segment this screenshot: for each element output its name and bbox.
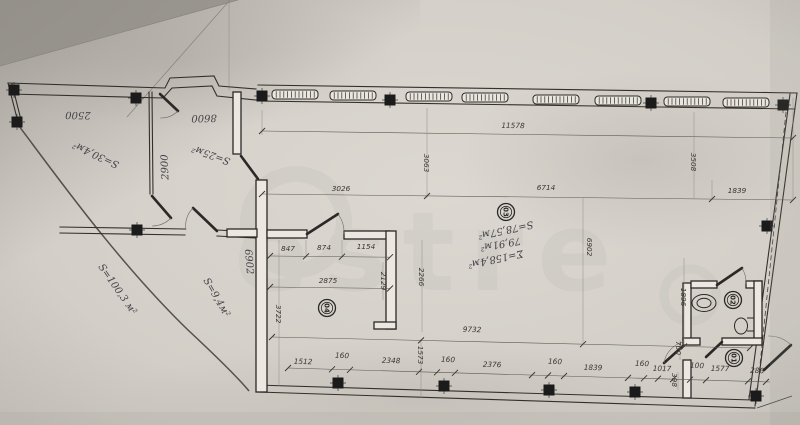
dim-1512: 1512 bbox=[294, 357, 313, 367]
dim-1154: 1154 bbox=[357, 242, 376, 251]
dim-160-d: 160 bbox=[635, 359, 650, 368]
dim-top-width: 11578 bbox=[501, 121, 525, 130]
note-mid-room-depth: 2900 bbox=[160, 154, 172, 181]
dim-9732: 9732 bbox=[463, 325, 482, 334]
dim-700: 700 bbox=[674, 341, 683, 355]
room-badge-04: 04 bbox=[319, 300, 336, 317]
dim-2376: 2376 bbox=[483, 360, 502, 370]
dim-847: 847 bbox=[281, 244, 295, 253]
dim-2875: 2875 bbox=[319, 276, 338, 285]
dim-1839-right: 1839 bbox=[728, 186, 747, 195]
dim-3508: 3508 bbox=[689, 153, 698, 172]
dim-1573: 1573 bbox=[416, 346, 425, 365]
dim-2129: 2129 bbox=[379, 272, 388, 291]
floor-plan-drawing: estre bbox=[0, 0, 800, 425]
dim-3722: 3722 bbox=[274, 305, 283, 324]
dim-2266: 2266 bbox=[417, 268, 426, 287]
room-badge-01: 01 bbox=[726, 350, 743, 367]
room-number-01: 01 bbox=[730, 353, 738, 363]
dim-6714: 6714 bbox=[537, 183, 556, 192]
dim-100: 100 bbox=[690, 361, 705, 370]
dim-3026: 3026 bbox=[332, 184, 351, 193]
room-badge-03: 03 bbox=[498, 204, 515, 221]
dim-6902: 6902 bbox=[585, 238, 594, 257]
dim-398: 398 bbox=[670, 373, 679, 387]
room-number-03: 03 bbox=[502, 207, 510, 217]
note-mid-room-width: 8600 bbox=[191, 112, 217, 123]
room-number-02: 02 bbox=[729, 295, 737, 305]
edge-shade bbox=[770, 0, 800, 425]
dim-1577: 1577 bbox=[711, 364, 730, 374]
room-badge-02: 02 bbox=[725, 292, 742, 309]
dim-1017: 1017 bbox=[653, 364, 672, 374]
dim-160-c: 160 bbox=[548, 357, 563, 366]
dim-160-a: 160 bbox=[335, 351, 350, 360]
floor-plan-photo: estre bbox=[0, 0, 800, 425]
room-number-04: 04 bbox=[323, 303, 331, 313]
dim-1839-bottom: 1839 bbox=[584, 363, 603, 373]
note-left-room-width: 2500 bbox=[65, 109, 92, 120]
edge-shade-bottom bbox=[0, 412, 800, 425]
dim-3063: 3063 bbox=[422, 154, 431, 173]
dim-2348: 2348 bbox=[382, 356, 401, 366]
note-hall-depth: 6902 bbox=[242, 249, 255, 275]
dim-286: 286 bbox=[750, 366, 765, 375]
dim-160-b: 160 bbox=[441, 355, 456, 364]
dim-874: 874 bbox=[317, 243, 331, 252]
dim-1896: 1896 bbox=[679, 288, 688, 307]
